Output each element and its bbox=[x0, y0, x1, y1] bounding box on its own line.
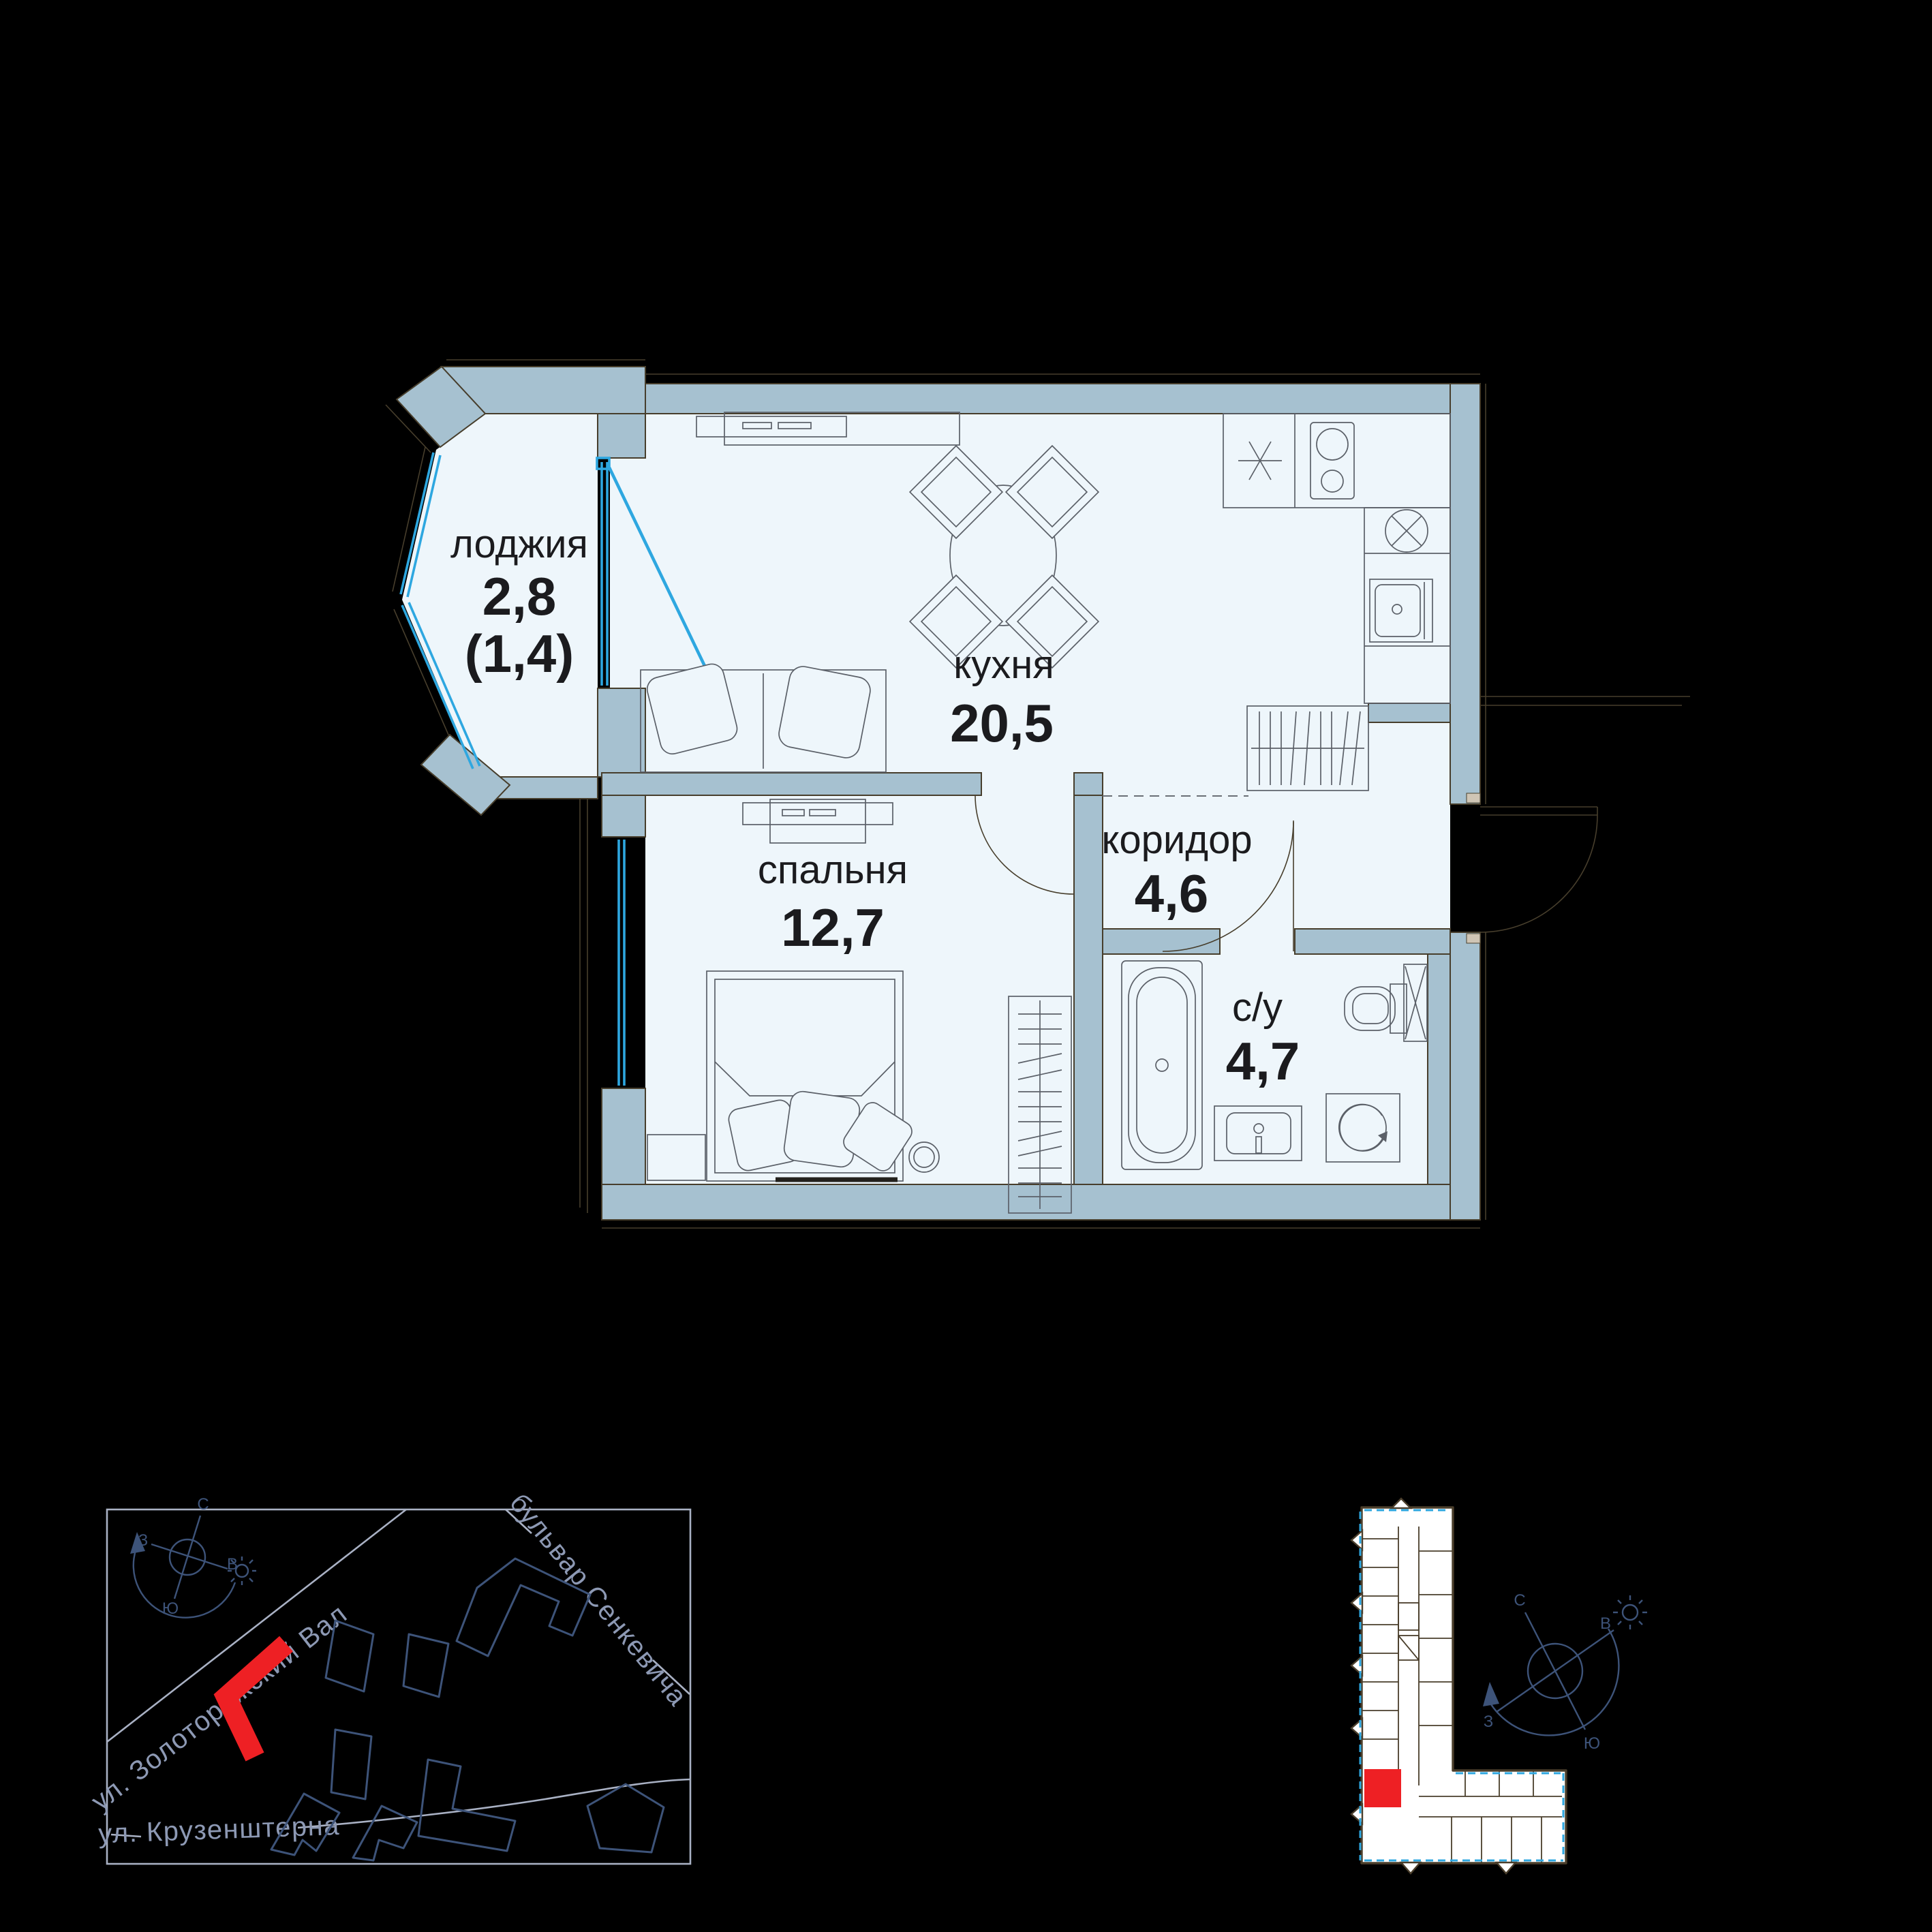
street-label-3: ул. Крузенштерна bbox=[97, 1811, 340, 1849]
map-compass-west: З bbox=[138, 1531, 149, 1550]
overview-compass-north: С bbox=[1514, 1591, 1525, 1610]
wall-closet-right bbox=[1368, 703, 1450, 722]
site-map: С З В Ю ул. Золоторожский Вал бульвар Се… bbox=[86, 1488, 693, 1864]
bathroom-area: 4,7 bbox=[1226, 1031, 1300, 1091]
map-building bbox=[587, 1784, 664, 1852]
wall-bedroom-right bbox=[1074, 795, 1103, 1220]
map-compass-south: Ю bbox=[162, 1599, 179, 1618]
wall-top bbox=[645, 384, 1480, 414]
overview-compass-west: З bbox=[1484, 1713, 1494, 1731]
overview-compass-east: В bbox=[1600, 1614, 1611, 1633]
floorplan-canvas: лоджия 2,8 (1,4) кухня 20,5 спальня 12,7… bbox=[0, 0, 1932, 1932]
wall-bedroom-door-corner bbox=[1074, 773, 1103, 795]
wall-corridor-bath-right bbox=[1295, 929, 1450, 954]
apartment-plan: лоджия 2,8 (1,4) кухня 20,5 спальня 12,7… bbox=[386, 360, 1690, 1228]
wall-loggia-stub-top bbox=[598, 414, 645, 458]
entry-door bbox=[1467, 793, 1597, 943]
map-compass: С З В Ю bbox=[130, 1495, 256, 1618]
loggia-label: лоджия bbox=[450, 522, 588, 566]
overview-sun-icon bbox=[1613, 1595, 1647, 1629]
floorplan-page: лоджия 2,8 (1,4) кухня 20,5 спальня 12,7… bbox=[0, 0, 1932, 1932]
map-building bbox=[353, 1806, 417, 1860]
map-compass-north: С bbox=[197, 1495, 209, 1514]
street-label-1: ул. Золоторожский Вал bbox=[86, 1599, 353, 1817]
wall-right-lower bbox=[1450, 932, 1480, 1220]
corridor-label: коридор bbox=[1101, 818, 1252, 862]
map-building bbox=[331, 1730, 371, 1799]
highlighted-unit bbox=[1364, 1769, 1401, 1807]
wall-bath-shaft bbox=[1428, 954, 1450, 1184]
wall-loggia-stub-bottom bbox=[598, 688, 645, 777]
site-map-border bbox=[107, 1509, 690, 1864]
kitchen-area: 20,5 bbox=[950, 693, 1054, 753]
floor-overview: С В З Ю bbox=[1351, 1499, 1647, 1873]
corridor-area: 4,6 bbox=[1135, 863, 1208, 923]
wall-bottom bbox=[602, 1184, 1480, 1220]
wall-corridor-bath-left bbox=[1103, 929, 1220, 954]
bedroom-label: спальня bbox=[758, 848, 908, 892]
overview-compass-south: Ю bbox=[1584, 1734, 1600, 1753]
overview-compass: С В З Ю bbox=[1483, 1591, 1647, 1753]
bathroom-label: с/у bbox=[1232, 985, 1283, 1030]
wall-kitchen-bedroom bbox=[602, 773, 981, 795]
kitchen-label: кухня bbox=[953, 643, 1054, 687]
map-building bbox=[403, 1634, 448, 1697]
map-building bbox=[326, 1621, 373, 1691]
wall-right-upper bbox=[1450, 384, 1480, 804]
bedroom-area: 12,7 bbox=[781, 898, 885, 957]
map-compass-east: В bbox=[227, 1555, 238, 1574]
street-label-2: бульвар Сенкевича bbox=[504, 1488, 693, 1712]
loggia-area-reduced: (1,4) bbox=[465, 624, 574, 684]
loggia-area: 2,8 bbox=[482, 566, 556, 626]
map-highlight-building bbox=[226, 1644, 286, 1757]
